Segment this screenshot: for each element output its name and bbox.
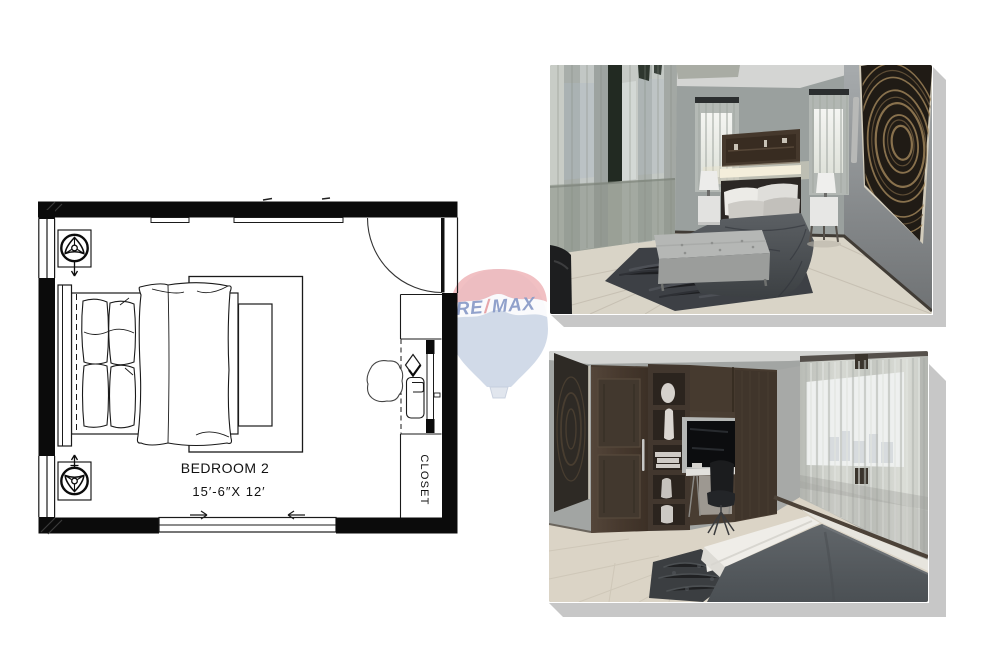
- svg-text:BEDROOM 2: BEDROOM 2: [181, 460, 270, 476]
- svg-text:15′-6″X 12′: 15′-6″X 12′: [192, 484, 265, 499]
- svg-text:CLOSET: CLOSET: [418, 454, 430, 505]
- svg-text:MAX: MAX: [491, 292, 537, 316]
- svg-text:RE: RE: [455, 296, 484, 319]
